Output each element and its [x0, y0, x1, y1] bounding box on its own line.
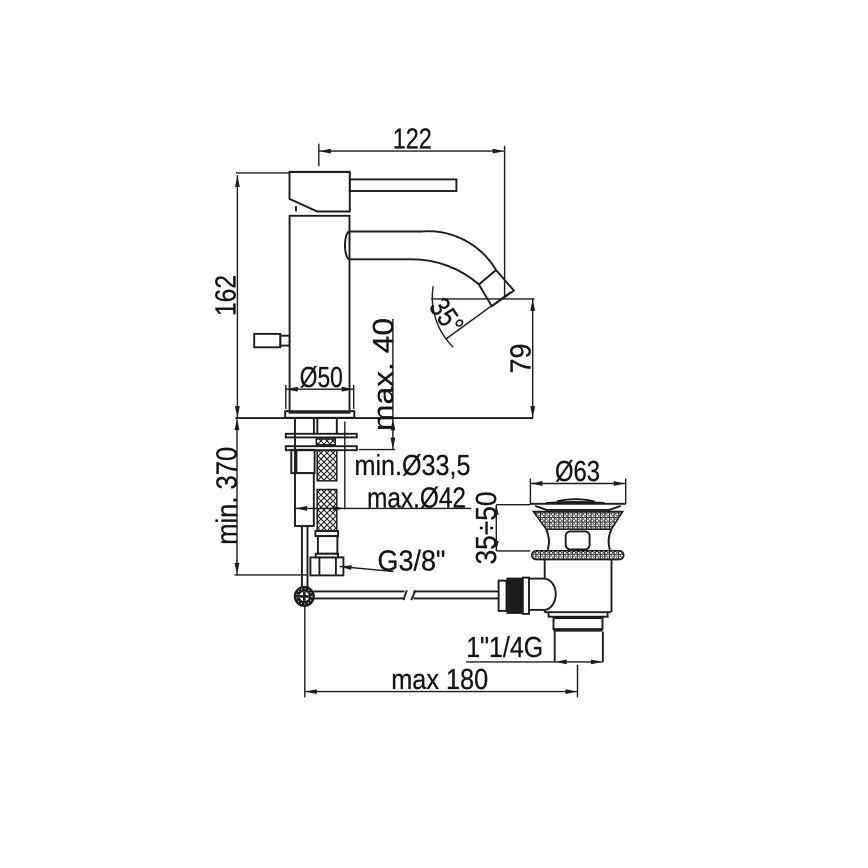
svg-text:max.Ø42: max.Ø42 — [367, 483, 466, 515]
svg-text:min.Ø33,5: min.Ø33,5 — [355, 450, 471, 482]
svg-text:max 180: max 180 — [391, 664, 488, 696]
svg-text:min. 370: min. 370 — [211, 447, 243, 545]
svg-text:1"1/4G: 1"1/4G — [466, 632, 543, 664]
svg-text:max. 40: max. 40 — [368, 318, 400, 431]
svg-text:122: 122 — [393, 124, 432, 156]
svg-text:Ø50: Ø50 — [300, 362, 343, 394]
svg-text:35÷50: 35÷50 — [471, 492, 503, 565]
svg-text:79: 79 — [506, 344, 538, 374]
svg-text:G3/8": G3/8" — [378, 545, 446, 577]
svg-text:162: 162 — [211, 275, 243, 316]
svg-text:Ø63: Ø63 — [555, 456, 600, 488]
